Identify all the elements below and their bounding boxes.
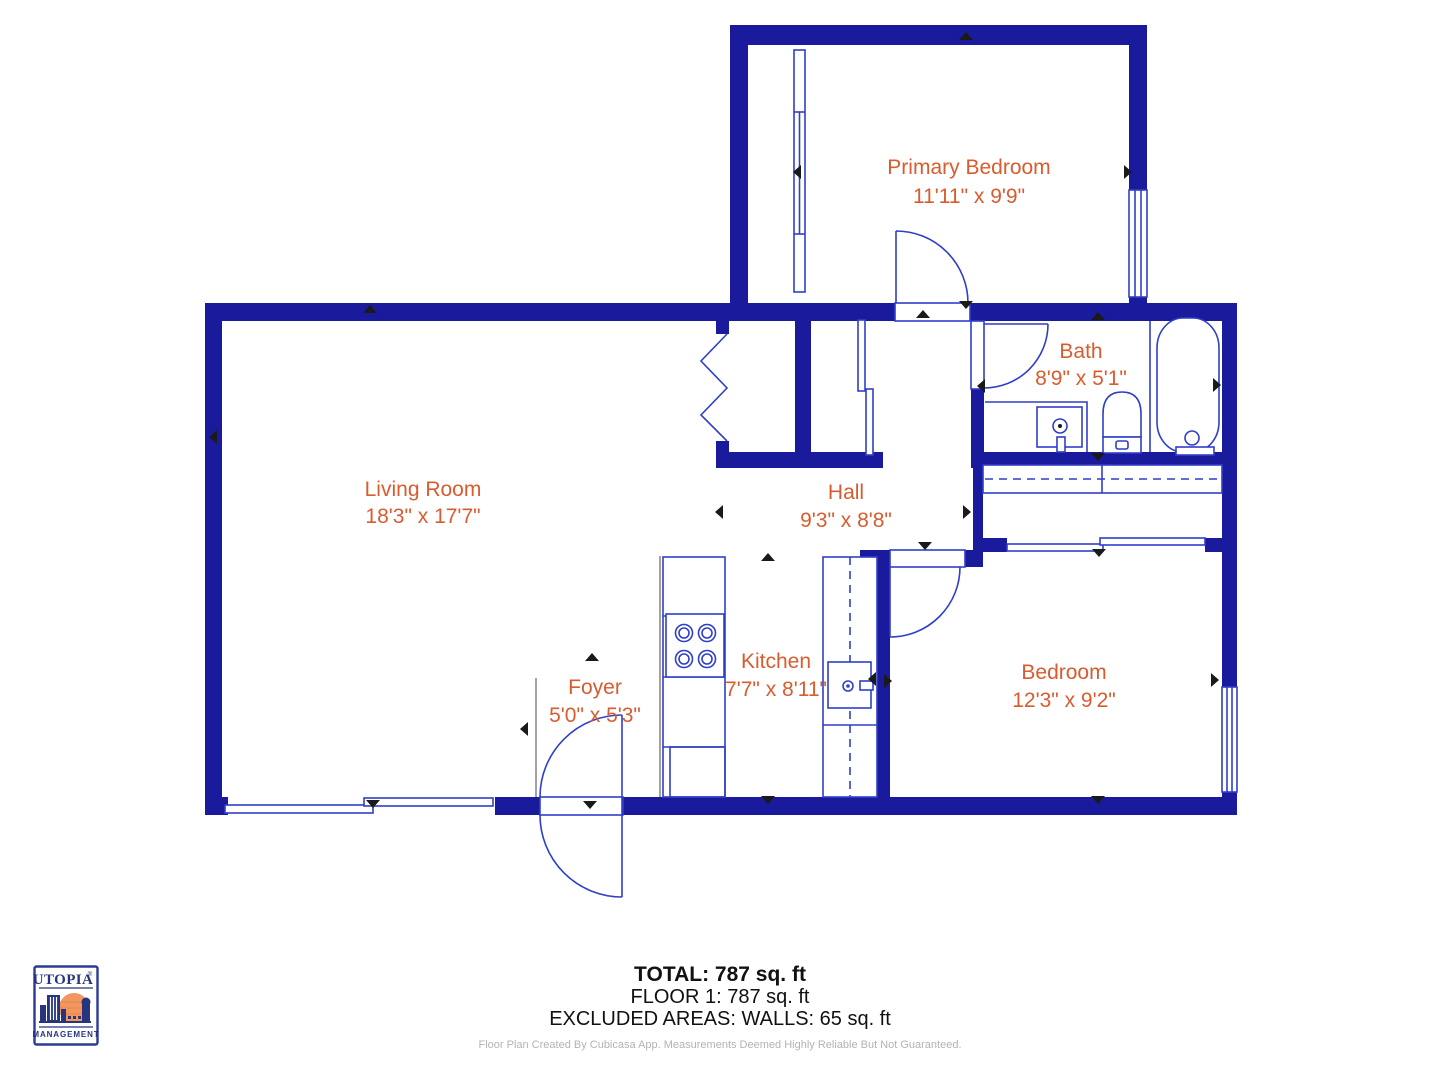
dims-foyer: 5'0" x 5'3" — [549, 704, 641, 727]
direction-marker — [1092, 549, 1106, 557]
direction-marker — [918, 542, 932, 550]
dims-kitchen: 7'7" x 8'11" — [725, 678, 827, 701]
direction-marker — [761, 553, 775, 561]
floor-plan-page: Primary Bedroom 11'11" x 9'9" Bath 8'9" … — [0, 0, 1440, 1080]
wardrobe — [983, 465, 1222, 493]
bathtub — [1157, 318, 1219, 455]
living-closet-bifold-door — [701, 334, 727, 441]
label-bath: Bath — [1059, 340, 1102, 363]
label-living-room: Living Room — [365, 478, 482, 501]
patio-sliding-door — [225, 798, 495, 814]
label-kitchen: Kitchen — [741, 650, 811, 673]
total-area-text: TOTAL: 787 sq. ft — [0, 964, 1440, 986]
primary-bedroom-door — [895, 231, 970, 321]
direction-marker — [585, 653, 599, 661]
logo-subtitle-text: MANAGEMENT — [33, 1030, 99, 1039]
vanity-sink — [985, 402, 1087, 452]
floor-plan-canvas: Primary Bedroom 11'11" x 9'9" Bath 8'9" … — [0, 0, 1440, 1080]
bedroom-door — [890, 550, 965, 637]
window-primary-bedroom — [1129, 190, 1147, 297]
bedroom-closet-sliding-door — [1007, 538, 1205, 551]
hall-closet-sliding-door — [858, 320, 873, 455]
label-hall: Hall — [828, 481, 864, 504]
toilet — [1103, 392, 1141, 453]
label-foyer: Foyer — [568, 676, 622, 699]
kitchen-sink — [828, 662, 873, 708]
direction-marker — [963, 505, 971, 519]
dims-living-room: 18'3" x 17'7" — [365, 505, 480, 528]
dims-bath: 8'9" x 5'1" — [1035, 367, 1127, 390]
entry-double-swing-door — [540, 715, 623, 897]
label-bedroom: Bedroom — [1021, 661, 1106, 684]
kitchen-counter-right — [823, 557, 877, 797]
utopia-management-logo: UTOPIA ® — [33, 965, 99, 1046]
stove — [666, 614, 724, 677]
disclaimer-text: Floor Plan Created By Cubicasa App. Meas… — [0, 1039, 1440, 1051]
floor-area-text: FLOOR 1: 787 sq. ft — [0, 986, 1440, 1008]
direction-marker — [715, 505, 723, 519]
direction-marker — [1211, 673, 1219, 687]
dims-primary-bedroom: 11'11" x 9'9" — [913, 185, 1025, 208]
area-summary: TOTAL: 787 sq. ft FLOOR 1: 787 sq. ft EX… — [0, 964, 1440, 1051]
logo-brand-text: UTOPIA — [33, 972, 93, 988]
direction-marker — [520, 722, 528, 736]
dims-bedroom: 12'3" x 9'2" — [1012, 689, 1116, 712]
kitchen-counter-left — [663, 557, 725, 797]
window-bedroom — [1222, 687, 1237, 792]
logo-registered-mark: ® — [88, 971, 93, 978]
excluded-area-text: EXCLUDED AREAS: WALLS: 65 sq. ft — [0, 1008, 1440, 1030]
label-primary-bedroom: Primary Bedroom — [887, 156, 1050, 179]
dims-hall: 9'3" x 8'8" — [800, 509, 892, 532]
